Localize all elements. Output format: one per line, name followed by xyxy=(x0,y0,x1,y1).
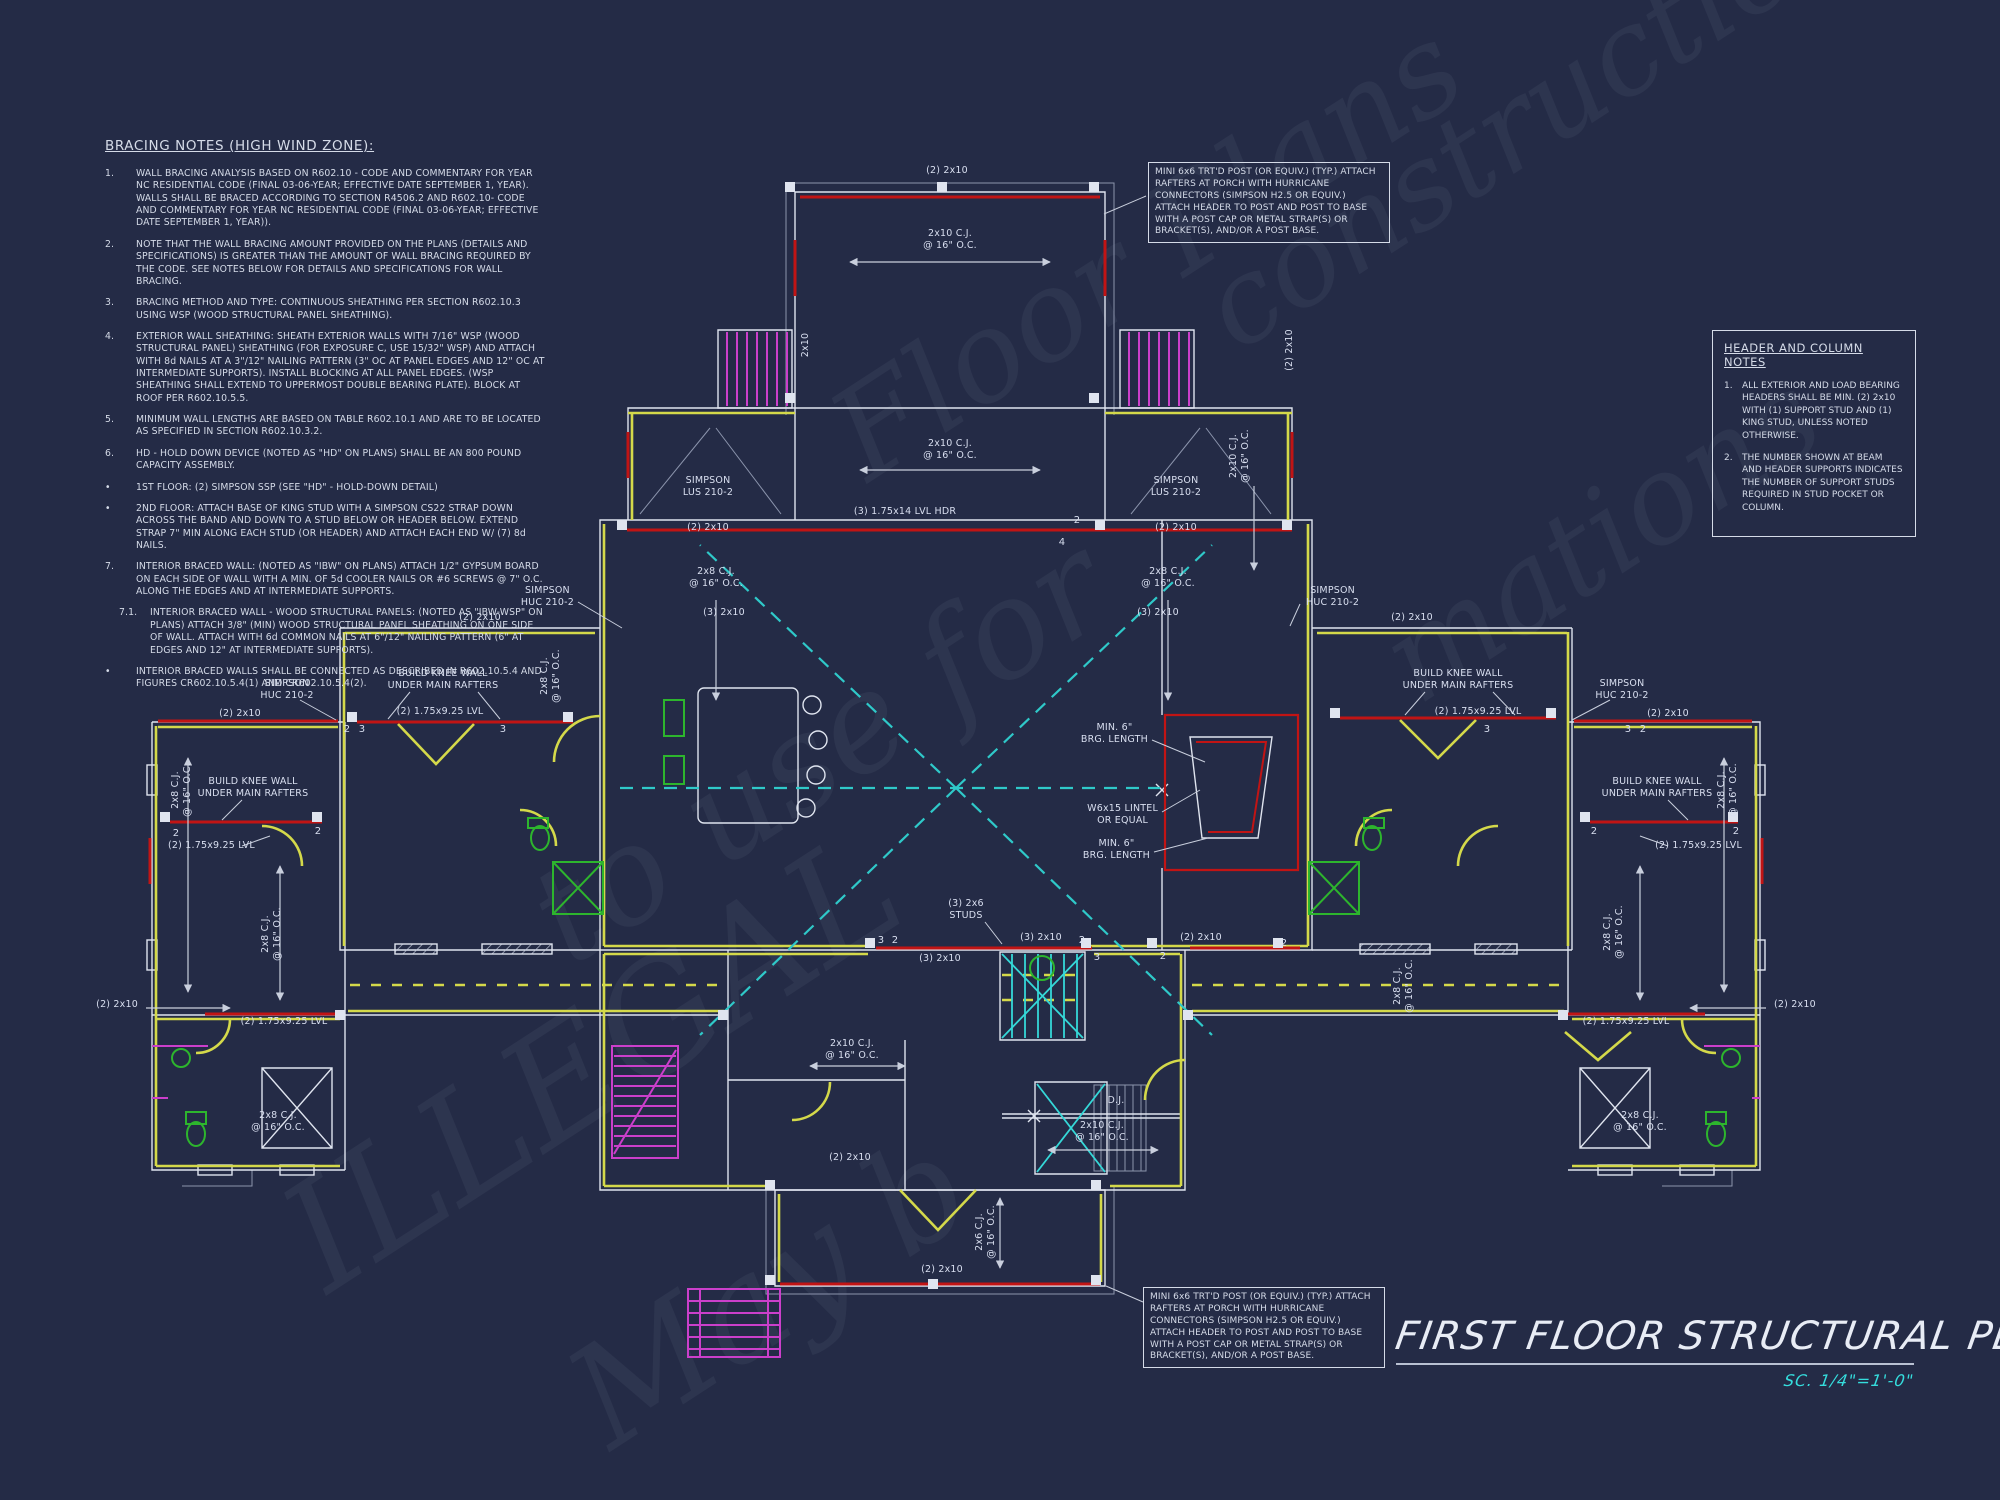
plan-label: SIMPSON LUS 210-2 xyxy=(683,475,733,499)
plan-label: MIN. 6" BRG. LENGTH xyxy=(1083,838,1150,862)
plan-label: 2 xyxy=(1640,724,1647,737)
plan-label: (2) 1.75x9.25 LVL xyxy=(1583,1016,1670,1028)
plan-label: 2 xyxy=(315,826,322,839)
structural-plan-sheet: ILLEGALto use forFloor Plansconstruction… xyxy=(0,0,2000,1500)
plan-label: (2) 2x10 xyxy=(1180,932,1222,944)
plan-label: (2) 2x10 xyxy=(96,999,138,1011)
plan-label: 2 xyxy=(1079,935,1086,948)
plan-label: (2) 1.75x9.25 LVL xyxy=(1435,706,1522,718)
plan-label: 2x10 C.J. @ 16" O.C. xyxy=(1228,429,1252,483)
plan-label: 3 xyxy=(1094,952,1101,965)
bracing-note-item: •1ST FLOOR: (2) SIMPSON SSP (SEE "HD" - … xyxy=(105,482,545,494)
plan-label: (2) 2x10 xyxy=(219,708,261,720)
plan-label: SIMPSON HUC 210-2 xyxy=(1595,678,1648,702)
plan-label: (2) 2x10 xyxy=(687,522,729,534)
plan-label: BUILD KNEE WALL UNDER MAIN RAFTERS xyxy=(198,776,309,800)
plan-label: (2) 2x10 xyxy=(921,1264,963,1276)
bracing-note-item: 7.INTERIOR BRACED WALL: (NOTED AS "IBW" … xyxy=(105,561,545,598)
sheet-scale: SC. 1/4"=1'-0" xyxy=(1394,1371,1915,1390)
plan-label: (2) 2x10 xyxy=(926,165,968,177)
bracing-notes-list: 1.WALL BRACING ANALYSIS BASED ON R602.10… xyxy=(105,168,545,691)
plan-label: BUILD KNEE WALL UNDER MAIN RAFTERS xyxy=(1403,668,1514,692)
plan-label: (3) 2x10 xyxy=(919,953,961,965)
bracing-note-item: 2.NOTE THAT THE WALL BRACING AMOUNT PROV… xyxy=(105,239,545,288)
header-column-notes: HEADER AND COLUMN NOTES 1.ALL EXTERIOR A… xyxy=(1712,330,1916,537)
plan-label: 3 xyxy=(500,724,507,737)
plumbing-fixtures-green xyxy=(172,700,1740,1146)
post-callout-bottom: MINI 6x6 TRT'D POST (OR EQUIV.) (TYP.) A… xyxy=(1143,1287,1385,1368)
bracing-note-item: •INTERIOR BRACED WALLS SHALL BE CONNECTE… xyxy=(105,666,545,691)
plan-label: SIMPSON HUC 210-2 xyxy=(1306,585,1359,609)
plan-label: 2x8 C.J. @ 16" O.C. xyxy=(1602,905,1626,959)
plan-label: (2) 2x10 xyxy=(1155,522,1197,534)
plan-label: 2x8 C.J. @ 16" O.C. xyxy=(1392,959,1416,1013)
plan-label: (2) 2x10 xyxy=(1647,708,1689,720)
plan-label: 2x6 C.J. @ 16" O.C. xyxy=(974,1205,998,1259)
plan-label: 2 xyxy=(1160,951,1167,964)
plan-label: 2x10 C.J. @ 16" O.C. xyxy=(825,1038,879,1062)
plan-label: W6x15 LINTEL OR EQUAL xyxy=(1087,803,1158,827)
plan-label: 2x10 C.J. @ 16" O.C. xyxy=(923,438,977,462)
plan-label: (2) 1.75x9.25 LVL xyxy=(168,840,255,852)
header-column-notes-title: HEADER AND COLUMN NOTES xyxy=(1724,341,1904,369)
plan-label: D.J. xyxy=(1108,1095,1125,1107)
plan-label: 4 xyxy=(1059,537,1066,550)
header-column-note-item: 1.ALL EXTERIOR AND LOAD BEARING HEADERS … xyxy=(1724,380,1904,442)
bracing-note-item: 6.HD - HOLD DOWN DEVICE (NOTED AS "HD" O… xyxy=(105,448,545,473)
bracing-notes: BRACING NOTES (HIGH WIND ZONE): 1.WALL B… xyxy=(105,138,545,700)
plan-label: 2 xyxy=(173,828,180,841)
plan-label: 2x10 C.J. @ 16" O.C. xyxy=(1075,1120,1129,1144)
plan-label: 2 xyxy=(344,724,351,737)
plan-label: (3) 2x6 STUDS xyxy=(948,898,984,922)
plan-label: 2 xyxy=(1281,938,1288,951)
plan-label: BUILD KNEE WALL UNDER MAIN RAFTERS xyxy=(1602,776,1713,800)
plan-label: 2x8 C.J. @ 16" O.C. xyxy=(251,1110,305,1134)
post-callout-top: MINI 6x6 TRT'D POST (OR EQUIV.) (TYP.) A… xyxy=(1148,162,1390,243)
plan-label: 2x10 C.J. @ 16" O.C. xyxy=(923,228,977,252)
plan-label: 2x10 xyxy=(800,333,812,358)
header-column-note-item: 2.THE NUMBER SHOWN AT BEAM AND HEADER SU… xyxy=(1724,452,1904,514)
plan-label: (2) 2x10 xyxy=(1284,329,1296,371)
plan-label: 2 xyxy=(1733,826,1740,839)
plan-label: 2x8 C.J. @ 16" O.C. xyxy=(1141,566,1195,590)
plan-label: 2x8 C.J. @ 16" O.C. xyxy=(689,566,743,590)
sheet-title: FIRST FLOOR STRUCTURAL PLAN xyxy=(1392,1314,1917,1359)
header-column-notes-list: 1.ALL EXTERIOR AND LOAD BEARING HEADERS … xyxy=(1724,380,1904,514)
plan-label: (3) 2x10 xyxy=(703,607,745,619)
bracing-note-item: 3.BRACING METHOD AND TYPE: CONTINUOUS SH… xyxy=(105,297,545,322)
plan-label: SIMPSON LUS 210-2 xyxy=(1151,475,1201,499)
plan-label: MIN. 6" BRG. LENGTH xyxy=(1081,722,1148,746)
plan-label: (3) 2x10 xyxy=(1020,932,1062,944)
plan-label: 2x8 C.J. @ 16" O.C. xyxy=(170,763,194,817)
plan-label: (3) 1.75x14 LVL HDR xyxy=(854,506,956,518)
bracing-note-item: 4.EXTERIOR WALL SHEATHING: SHEATH EXTERI… xyxy=(105,331,545,405)
plan-label: 3 xyxy=(359,724,366,737)
bracing-notes-title: BRACING NOTES (HIGH WIND ZONE): xyxy=(105,138,545,154)
title-underline xyxy=(1396,1363,1914,1365)
bracing-note-item: 1.WALL BRACING ANALYSIS BASED ON R602.10… xyxy=(105,168,545,230)
plan-label: (2) 2x10 xyxy=(829,1152,871,1164)
plan-label: 2 xyxy=(1074,515,1081,528)
plan-label: (2) 1.75x9.25 LVL xyxy=(397,706,484,718)
bracing-note-item: 5.MINIMUM WALL LENGTHS ARE BASED ON TABL… xyxy=(105,414,545,439)
plan-label: 3 xyxy=(1484,724,1491,737)
plan-label: 3 xyxy=(1625,724,1632,737)
plan-label: (2) 1.75x9.25 LVL xyxy=(1655,840,1742,852)
plan-label: 2 xyxy=(892,935,899,948)
title-block: FIRST FLOOR STRUCTURAL PLAN SC. 1/4"=1'-… xyxy=(1396,1314,1914,1390)
plan-label: 2 xyxy=(1591,826,1598,839)
plan-label: (3) 2x10 xyxy=(1137,607,1179,619)
bracing-note-item: •2ND FLOOR: ATTACH BASE OF KING STUD WIT… xyxy=(105,503,545,552)
bracing-note-item: 7.1.INTERIOR BRACED WALL - WOOD STRUCTUR… xyxy=(119,607,545,656)
plan-label: (2) 1.75x9.25 LVL xyxy=(241,1016,328,1028)
plan-label: 2x8 C.J. @ 16" O.C. xyxy=(260,907,284,961)
plan-label: 2x8 C.J. @ 16" O.C. xyxy=(1613,1110,1667,1134)
plan-label: (2) 2x10 xyxy=(1774,999,1816,1011)
plan-label: 2x8 C.J. @ 16" O.C. xyxy=(1716,763,1740,817)
plan-label: (2) 2x10 xyxy=(1391,612,1433,624)
plan-label: 3 xyxy=(878,935,885,948)
